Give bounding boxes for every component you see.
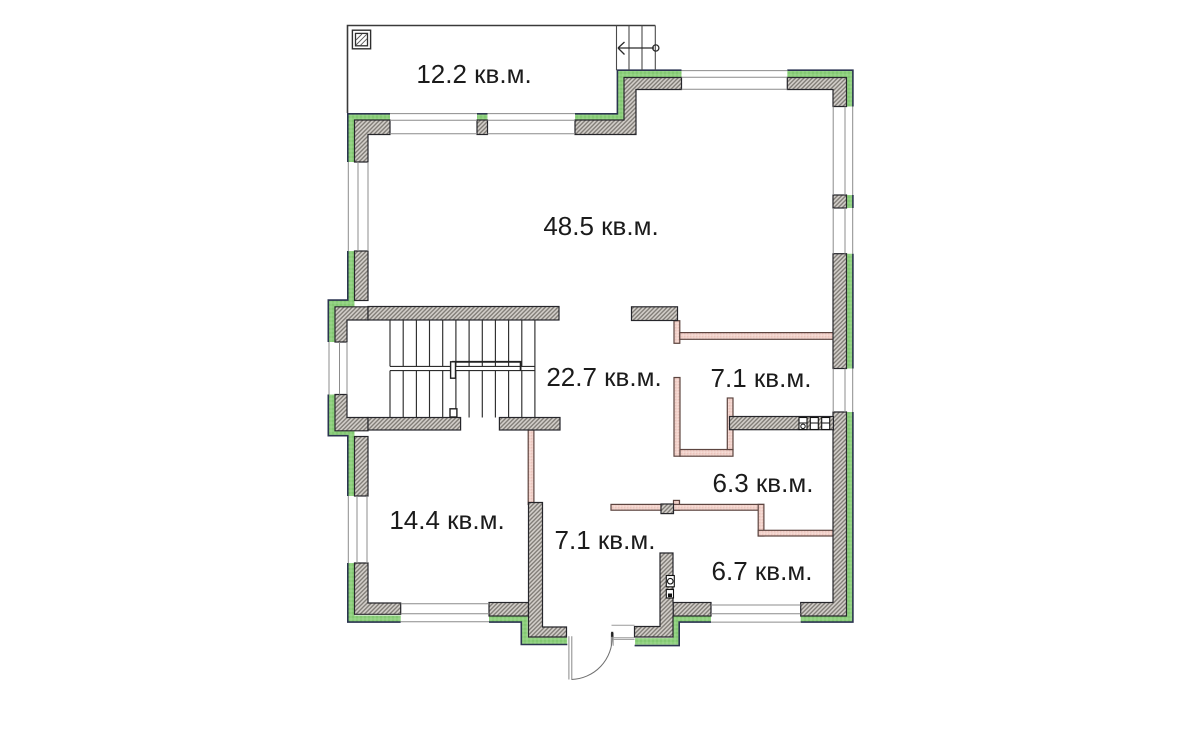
- svg-text:7.1 кв.м.: 7.1 кв.м.: [555, 525, 656, 555]
- svg-text:7.1 кв.м.: 7.1 кв.м.: [711, 363, 812, 393]
- svg-text:6.7 кв.м.: 6.7 кв.м.: [712, 556, 813, 586]
- svg-text:48.5 кв.м.: 48.5 кв.м.: [543, 211, 658, 241]
- svg-text:12.2 кв.м.: 12.2 кв.м.: [416, 59, 531, 89]
- svg-text:6.3 кв.м.: 6.3 кв.м.: [713, 468, 814, 498]
- svg-text:14.4 кв.м.: 14.4 кв.м.: [389, 505, 504, 535]
- svg-text:22.7 кв.м.: 22.7 кв.м.: [546, 362, 661, 392]
